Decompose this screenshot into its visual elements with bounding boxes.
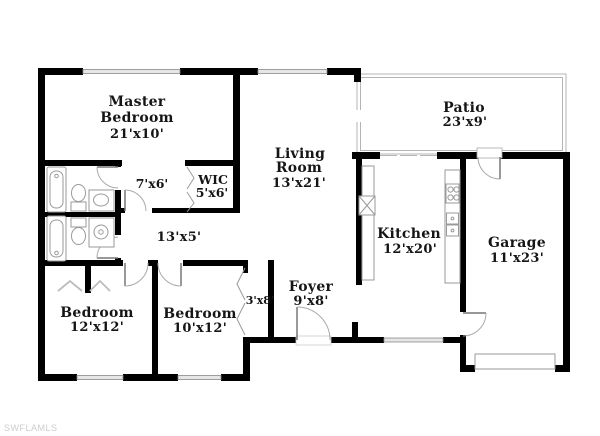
label-bedroom-2-dim: 12'x12'	[70, 320, 124, 335]
bathtub-icon	[47, 167, 66, 212]
shower-icon	[89, 218, 114, 247]
wall-bottom-b	[123, 374, 178, 381]
label-garage: Garage	[488, 235, 546, 251]
wall-between-bedrooms	[152, 260, 158, 381]
wall-patio-bottom-c	[500, 152, 570, 159]
wall-kitchen-divider-stub	[352, 322, 358, 343]
label-foyer: Foyer	[289, 279, 334, 295]
bifold-door-hall-closet	[237, 268, 245, 335]
closet-rod-bedroom-2	[58, 281, 110, 291]
label-wic-dim: 5'x6'	[196, 185, 229, 200]
patio-door-frame	[477, 148, 502, 158]
wall-bath-top	[45, 160, 122, 166]
toilet-icon	[71, 218, 86, 245]
label-master-bath-dim: 7'x6'	[136, 176, 169, 191]
bifold-door-wic	[187, 167, 194, 212]
window-living-room	[258, 70, 327, 74]
label-hallway-dim: 13'x5'	[157, 230, 202, 245]
door-entry	[297, 307, 330, 340]
label-patio: Patio	[443, 100, 485, 116]
wall-wic-top	[185, 160, 240, 166]
floor-plan-page: Master Bedroom 21'x10' Patio 23'x9' Livi…	[0, 0, 600, 436]
window-bedroom-2	[77, 376, 123, 380]
door-kitchen-to-garage	[463, 313, 486, 336]
door-bedroom-3	[158, 263, 181, 286]
wall-kitchen-divider	[356, 152, 362, 285]
wall-bedroom2-closet-stub	[85, 266, 91, 293]
garage-vehicle-door	[475, 354, 555, 369]
label-garage-dim: 11'x23'	[490, 251, 544, 266]
wall-left	[38, 68, 45, 381]
wall-step-vertical	[243, 337, 250, 381]
entry-threshold	[296, 336, 331, 345]
wall-garage-right	[563, 152, 570, 372]
wall-master-right	[233, 68, 240, 213]
label-kitchen-dim: 12'x20'	[383, 242, 437, 257]
refrigerator-icon	[359, 196, 375, 215]
label-hall-closet-dim: 3'x8'	[246, 294, 275, 307]
window-master-bedroom	[83, 70, 180, 74]
label-master-bedroom: Bedroom	[100, 110, 174, 126]
watermark: SWFLAMLS	[4, 423, 58, 433]
label-bedroom-3: Bedroom	[163, 306, 237, 322]
label-foyer-dim: 9'x8'	[293, 294, 328, 309]
wall-bath-right-b	[115, 190, 121, 235]
room-labels: Master Bedroom 21'x10' Patio 23'x9' Livi…	[60, 94, 546, 336]
wall-patio-bottom-b	[437, 152, 478, 159]
vanity-sink-icon	[89, 190, 114, 211]
door-bedroom-2	[125, 263, 148, 286]
wall-hall-bottom-b	[183, 260, 248, 266]
window-front	[384, 338, 443, 342]
kitchen-fixtures	[359, 166, 460, 283]
door-master-bath	[97, 167, 118, 188]
label-patio-dim: 23'x9'	[443, 115, 488, 130]
wall-top-c	[327, 68, 361, 75]
wall-bottom-a	[38, 374, 77, 381]
label-kitchen: Kitchen	[377, 226, 441, 242]
label-master-bedroom-dim: 21'x10'	[110, 127, 164, 142]
label-living-room: Room	[276, 160, 322, 176]
wall-hall-top	[152, 208, 240, 213]
wall-bath-right-a	[115, 160, 121, 167]
wall-garage-left-a	[460, 152, 466, 312]
label-living-room-dim: 13'x21'	[272, 176, 326, 191]
patio-screen-door-gap	[354, 110, 363, 122]
door-garage-to-patio	[478, 157, 500, 179]
toilet-icon	[71, 185, 86, 212]
label-bedroom-3-dim: 10'x12'	[173, 321, 227, 336]
label-master-bedroom: Master	[108, 94, 165, 110]
wall-top-b	[180, 68, 258, 75]
window-bedroom-3	[178, 376, 221, 380]
wall-garage-bottom-a	[460, 365, 475, 372]
bathtub-icon	[47, 216, 66, 261]
wall-top-right-stub	[354, 75, 361, 82]
kitchen-counter-left	[362, 166, 374, 280]
floor-plan: Master Bedroom 21'x10' Patio 23'x9' Livi…	[0, 0, 600, 436]
door-dressing-to-hall	[125, 190, 146, 211]
label-bedroom-2: Bedroom	[60, 305, 134, 321]
